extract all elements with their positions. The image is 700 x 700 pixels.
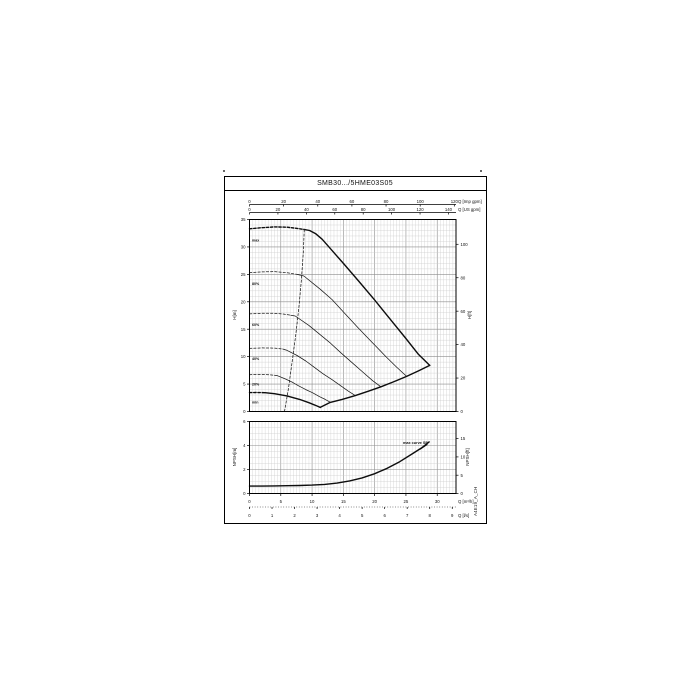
curve-speed-80-dashed xyxy=(250,272,298,275)
h-ft-tick-label: 0 xyxy=(461,409,464,414)
q-ls-tick-label: 4 xyxy=(338,513,341,518)
h-m-tick-label: 25 xyxy=(241,272,246,277)
top_us-tick-label: 20 xyxy=(276,207,281,212)
top_us-tick-label: 140 xyxy=(445,207,453,212)
document-code: A4E19_A_CH xyxy=(473,487,478,516)
top_imp-tick-label: 40 xyxy=(315,199,320,204)
top_imp-tick-label: 100 xyxy=(417,199,425,204)
q-ls-tick-label: 8 xyxy=(429,513,432,518)
curve-label-max: max xyxy=(252,238,259,242)
q-ls-tick-label: 0 xyxy=(248,513,251,518)
top_imp-tick-label: 80 xyxy=(384,199,389,204)
curve-max-solid xyxy=(304,229,430,365)
curve-label-speed-80: 80% xyxy=(252,282,260,286)
top_us-tick-label: 120 xyxy=(416,207,424,212)
q-m3h-axis-label: Q [m³/h] xyxy=(458,499,474,504)
h-m-tick-label: 20 xyxy=(241,299,246,304)
top_imp-axis-label: Q [Imp gpm] xyxy=(458,199,482,204)
curve-max-dashed xyxy=(250,227,304,230)
page: { "page": { "title": "SMB30.../5HME03S05… xyxy=(0,0,700,700)
curve-label-speed-20: 20% xyxy=(252,383,260,387)
h-m-tick-label: 30 xyxy=(241,245,246,250)
pump-curve-diagram: max80%60%40%20%min020406080100120Q [Imp … xyxy=(0,0,700,700)
q-m3h-tick-label: 30 xyxy=(435,499,440,504)
q-m3h-tick-label: 0 xyxy=(248,499,251,504)
top_imp-tick-label: 0 xyxy=(248,199,251,204)
npsh-m-tick-label: 2 xyxy=(243,467,246,472)
q-ls-tick-label: 9 xyxy=(451,513,454,518)
curve-label-min: min xyxy=(252,401,258,405)
h-m-tick-label: 15 xyxy=(241,327,246,332)
h-m-tick-label: 35 xyxy=(241,217,246,222)
q-ls-tick-label: 1 xyxy=(271,513,274,518)
top_us-tick-label: 100 xyxy=(388,207,396,212)
q-m3h-tick-label: 25 xyxy=(404,499,409,504)
q-m3h-tick-label: 10 xyxy=(310,499,315,504)
npsh-ft-tick-label: 5 xyxy=(461,473,464,478)
npsh-ft-axis-label: NPSH[ft] xyxy=(465,448,470,466)
npsh-ft-tick-label: 0 xyxy=(461,491,464,496)
curve-label-speed-60: 60% xyxy=(252,323,260,327)
top_us-tick-label: 0 xyxy=(248,207,251,212)
npsh-ft-tick-label: 15 xyxy=(461,436,466,441)
q-ls-tick-label: 3 xyxy=(316,513,319,518)
h-ft-tick-label: 40 xyxy=(461,342,466,347)
h-ft-axis-label: H[ft] xyxy=(467,311,472,319)
q-ls-tick-label: 5 xyxy=(361,513,364,518)
q-m3h-tick-label: 20 xyxy=(372,499,377,504)
curve-npsh-max-curve xyxy=(250,442,430,486)
h-ft-tick-label: 100 xyxy=(461,242,469,247)
h-m-axis-label: H[m] xyxy=(232,310,237,320)
q-m3h-tick-label: 5 xyxy=(280,499,283,504)
top_imp-tick-label: 20 xyxy=(281,199,286,204)
q-m3h-tick-label: 15 xyxy=(341,499,346,504)
h-m-tick-label: 5 xyxy=(243,382,246,387)
npsh-m-axis-label: NPSH[m] xyxy=(232,448,237,467)
top_us-axis-label: Q [US gpm] xyxy=(458,207,480,212)
q-ls-axis-label: Q [l/s] xyxy=(458,513,469,518)
npsh-annotation: max curve SP xyxy=(403,441,428,445)
q-ls-tick-label: 2 xyxy=(293,513,296,518)
h-m-tick-label: 0 xyxy=(243,409,246,414)
h-ft-tick-label: 80 xyxy=(461,275,466,280)
h-ft-tick-label: 60 xyxy=(461,309,466,314)
curve-speed-20-solid xyxy=(275,375,331,402)
npsh-m-tick-label: 4 xyxy=(243,443,246,448)
h-ft-tick-label: 20 xyxy=(461,376,466,381)
top_imp-tick-label: 60 xyxy=(350,199,355,204)
q-ls-tick-label: 7 xyxy=(406,513,409,518)
h-m-tick-label: 10 xyxy=(241,354,246,359)
top_us-tick-label: 80 xyxy=(361,207,366,212)
curve-label-speed-40: 40% xyxy=(252,357,260,361)
q-ls-tick-label: 6 xyxy=(383,513,386,518)
top_us-tick-label: 60 xyxy=(332,207,337,212)
npsh-m-tick-label: 6 xyxy=(243,419,246,424)
npsh-m-tick-label: 0 xyxy=(243,491,246,496)
top_us-tick-label: 40 xyxy=(304,207,309,212)
